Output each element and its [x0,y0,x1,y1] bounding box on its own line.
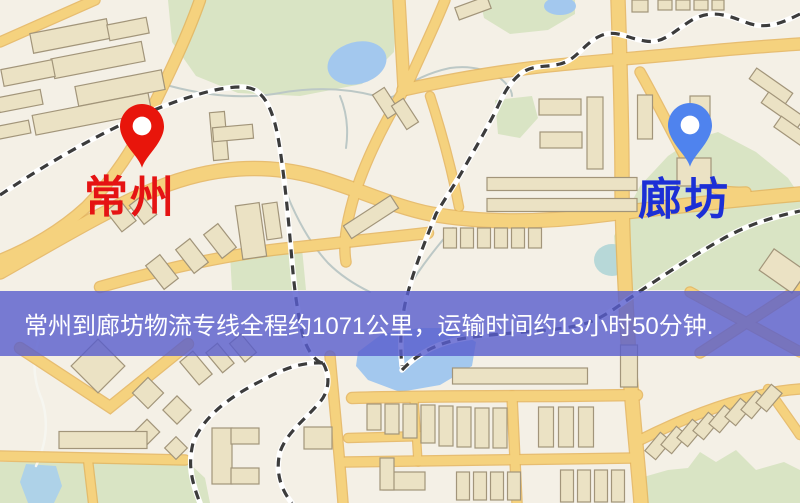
building [231,428,259,444]
building [212,124,253,141]
origin-pin-icon[interactable] [120,104,164,170]
destination-pin-icon[interactable] [668,103,712,169]
building [595,470,608,502]
building [421,405,435,443]
building [487,178,637,191]
building [529,228,542,248]
building [231,468,259,484]
building [539,99,581,115]
road [0,456,185,460]
building [587,97,603,169]
water-lake [20,464,62,503]
road [352,395,637,398]
building [457,472,470,500]
building [638,95,653,139]
map-canvas[interactable] [0,0,800,503]
building [444,228,457,248]
building [461,228,474,248]
building [457,407,471,447]
building [578,470,591,502]
map: 常州 廊坊 常州到廊坊物流专线全程约1071公里，运输时间约13小时50分钟. [0,0,800,503]
building [495,228,508,248]
origin-city-label: 常州 [84,176,176,220]
building [487,199,637,212]
building [712,0,724,10]
building [304,427,332,449]
building [493,408,507,448]
building [385,404,399,434]
building [212,428,232,484]
building [367,404,381,430]
building [59,432,147,449]
road [399,0,404,88]
building [403,404,417,438]
building [561,470,574,502]
building [491,472,504,500]
road [88,460,93,503]
building [453,368,588,384]
route-info-text: 常州到廊坊物流专线全程约1071公里，运输时间约13小时50分钟. [24,306,713,341]
building [632,0,648,12]
route-info-banner: 常州到廊坊物流专线全程约1071公里，运输时间约13小时50分钟. [0,291,800,356]
pin-hole [681,116,700,135]
building [475,408,489,448]
pin-hole [133,117,152,136]
building [474,472,487,500]
building [658,0,672,10]
building [539,407,554,447]
destination-city-label: 廊坊 [638,178,730,222]
building [559,407,574,447]
building [512,228,525,248]
building [478,228,491,248]
building [439,406,453,446]
building [508,472,521,500]
building [612,470,625,502]
building [579,407,594,447]
building [540,132,582,148]
building [380,458,394,490]
building [676,0,690,10]
building [694,0,708,10]
